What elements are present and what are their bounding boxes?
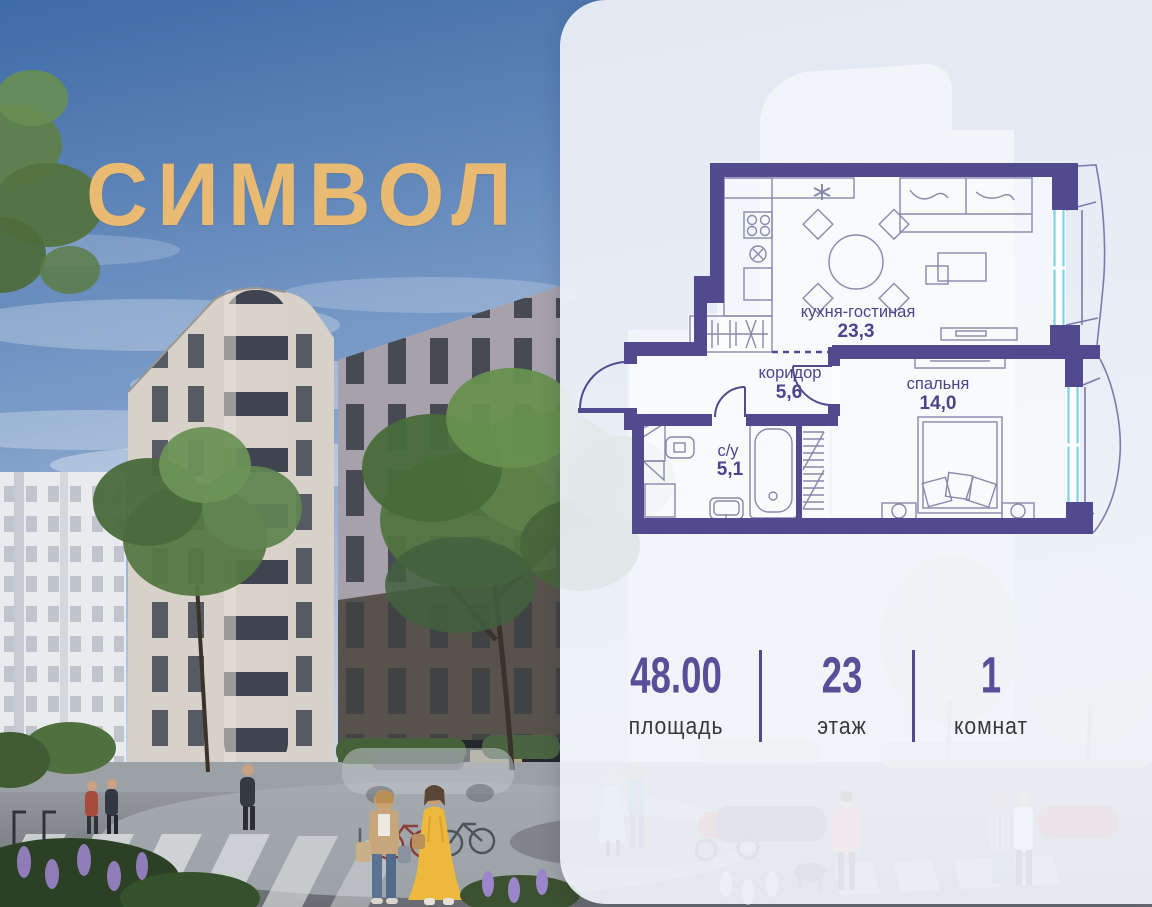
room-label-bedroom: спальня bbox=[907, 375, 970, 393]
room-area-bedroom: 14,0 bbox=[920, 393, 957, 414]
apartment-stats: 48.00 площадь 23 этаж 1 комнат bbox=[560, 648, 1152, 748]
room-area-kitchen: 23,3 bbox=[838, 321, 875, 342]
stat-rooms-label: комнат bbox=[954, 712, 1028, 740]
stat-floor: 23 этаж bbox=[815, 648, 869, 739]
stats-divider-1 bbox=[759, 650, 762, 742]
stat-floor-label: этаж bbox=[817, 712, 866, 740]
apartment-card: кухня-гостиная 23,3 коридор 5,6 спальня … bbox=[560, 0, 1152, 904]
listing-banner: СИМВОЛ bbox=[0, 0, 1152, 907]
stat-area-label: площадь bbox=[622, 712, 730, 740]
stat-area-value: 48.00 bbox=[630, 648, 722, 702]
stat-floor-value: 23 bbox=[821, 648, 863, 702]
floor-plan: кухня-гостиная 23,3 коридор 5,6 спальня … bbox=[560, 140, 1152, 620]
brand-logo: СИМВОЛ bbox=[86, 150, 516, 239]
stats-divider-2 bbox=[912, 650, 915, 742]
stat-rooms-value: 1 bbox=[960, 648, 1023, 702]
room-label-corridor: коридор bbox=[759, 364, 822, 382]
stat-area: 48.00 площадь bbox=[617, 648, 735, 739]
room-area-corridor: 5,6 bbox=[776, 382, 802, 403]
room-area-bathroom: 5,1 bbox=[717, 459, 744, 480]
room-label-bathroom: с/у bbox=[717, 442, 739, 460]
stat-rooms: 1 комнат bbox=[951, 648, 1031, 739]
room-label-kitchen: кухня-гостиная bbox=[801, 303, 916, 321]
